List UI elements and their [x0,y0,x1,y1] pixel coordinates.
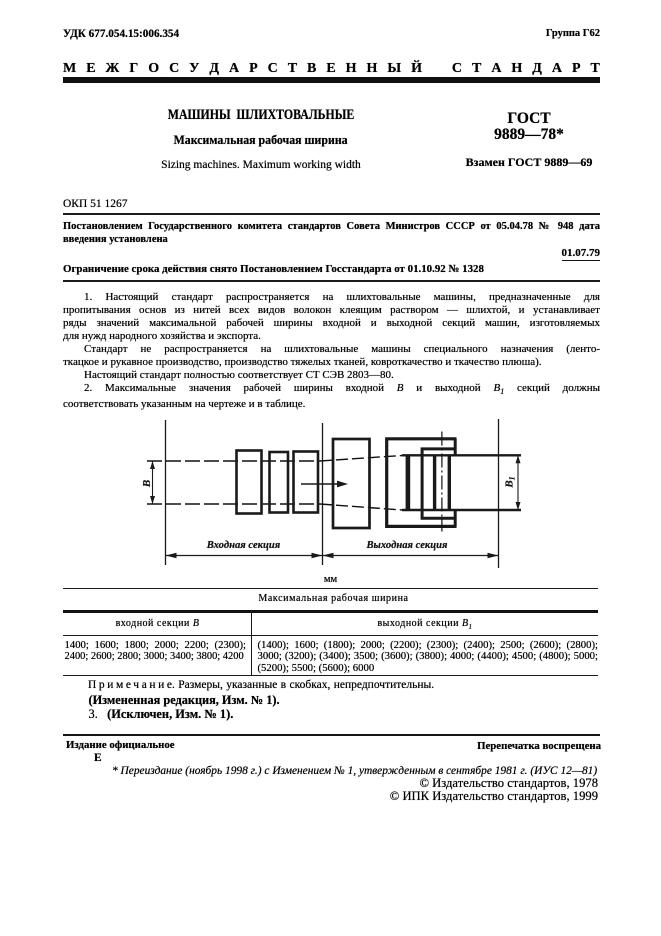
svg-text:Входная секция: Входная секция [206,540,281,551]
svg-text:Выходная секция: Выходная секция [365,540,448,551]
svg-text:В1: В1 [504,476,517,488]
svg-text:В: В [141,480,153,488]
